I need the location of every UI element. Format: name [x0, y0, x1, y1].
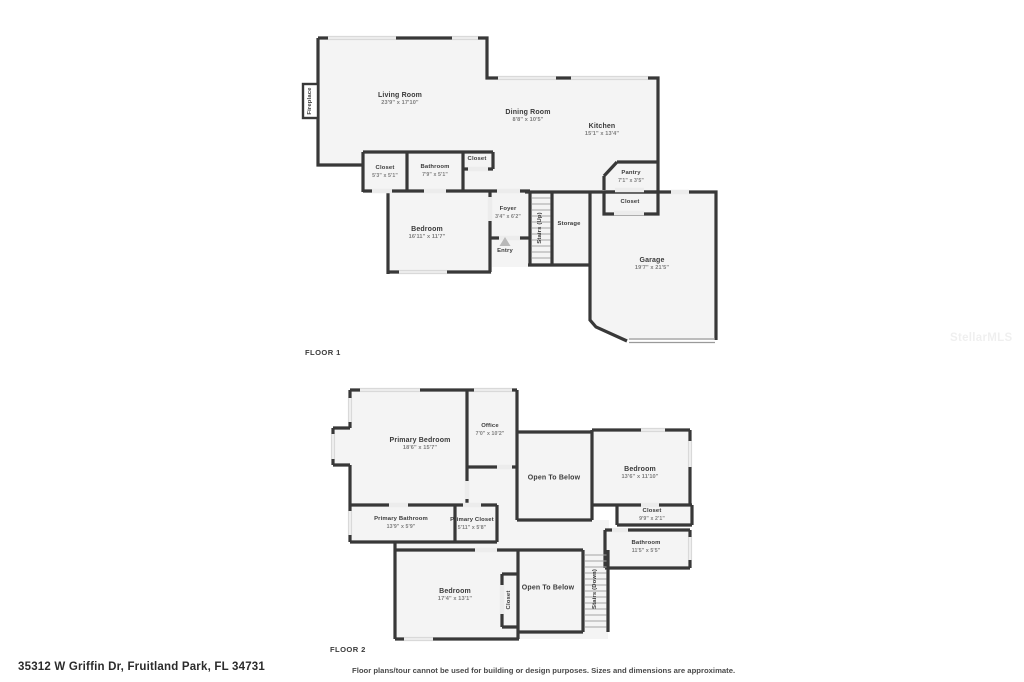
room-name: Bedroom: [438, 587, 472, 596]
room-name: Closet: [372, 165, 398, 173]
label-fireplace: Fireplace: [307, 87, 315, 114]
room-name: Primary Closet: [448, 517, 496, 525]
label-living-room: Living Room 23'9" x 17'10": [378, 91, 422, 107]
label-stairs-up: Stairs (Up): [537, 212, 545, 243]
label-foyer: Foyer 3'4" x 6'2": [495, 206, 521, 220]
label-dining-room: Dining Room 8'8" x 10'5": [505, 108, 550, 124]
room-name: Stairs (Down): [592, 569, 600, 609]
room-name: Garage: [635, 256, 669, 265]
room-dims: 15'1" x 13'4": [585, 131, 619, 138]
room-dims: 5'11" x 5'8": [448, 524, 496, 531]
room-name: Primary Bedroom: [390, 436, 451, 445]
room-name: Open To Below: [528, 473, 580, 482]
room-dims: 23'9" x 17'10": [378, 100, 422, 107]
room-name: Open To Below: [522, 583, 574, 592]
label-open-to-below-1: Open To Below: [528, 473, 580, 482]
label-closet-strip: Closet: [506, 591, 514, 610]
room-dims: 11'5" x 5'5": [631, 547, 660, 554]
label-kitchen: Kitchen 15'1" x 13'4": [585, 122, 619, 138]
room-name: Foyer: [495, 206, 521, 214]
stellar-mls-watermark: StellarMLS: [950, 332, 1012, 344]
property-address: 35312 W Griffin Dr, Fruitland Park, FL 3…: [18, 661, 265, 673]
label-primary-closet: Primary Closet 5'11" x 5'8": [448, 517, 496, 531]
garage-door-line: [629, 339, 715, 343]
label-bathroom-f2: Bathroom 11'5" x 5'5": [631, 540, 660, 554]
label-bedroom-f1: Bedroom 16'11" x 11'7": [409, 225, 446, 241]
room-name: Stairs (Up): [537, 212, 545, 243]
label-closet-3: Closet: [621, 199, 640, 207]
floor-plan-drawing: [0, 0, 1024, 682]
room-dims: 18'6" x 15'7": [390, 445, 451, 452]
room-name: Closet: [468, 156, 487, 164]
label-open-to-below-2: Open To Below: [522, 583, 574, 592]
label-closet-1: Closet 5'3" x 5'1": [372, 165, 398, 179]
room-name: Pantry: [618, 170, 644, 178]
room-dims: 8'8" x 10'5": [505, 117, 550, 124]
room-dims: 7'0" x 10'2": [476, 430, 505, 437]
room-name: Living Room: [378, 91, 422, 100]
label-primary-bathroom: Primary Bathroom 13'9" x 5'9": [374, 516, 428, 530]
room-dims: 3'4" x 6'2": [495, 213, 521, 220]
room-dims: 17'4" x 13'1": [438, 596, 472, 603]
label-storage: Storage: [558, 221, 581, 229]
label-garage: Garage 19'7" x 21'5": [635, 256, 669, 272]
room-name: Bedroom: [409, 225, 446, 234]
floor-plan-page: Fireplace Living Room 23'9" x 17'10" Din…: [0, 0, 1024, 682]
room-dims: 13'6" x 11'10": [621, 474, 658, 481]
label-closet-right: Closet 9'9" x 2'1": [639, 508, 665, 522]
label-bedroom-bottom: Bedroom 17'4" x 13'1": [438, 587, 472, 603]
room-name: Kitchen: [585, 122, 619, 131]
room-name: Dining Room: [505, 108, 550, 117]
label-pantry: Pantry 7'1" x 3'5": [618, 170, 644, 184]
room-name: Bedroom: [621, 465, 658, 474]
room-dims: 16'11" x 11'7": [409, 234, 446, 241]
room-name: Office: [476, 423, 505, 431]
room-name: Fireplace: [307, 87, 315, 114]
label-stairs-down: Stairs (Down): [592, 569, 600, 609]
room-name: Closet: [506, 591, 514, 610]
floor1-tag: FLOOR 1: [305, 348, 341, 357]
room-name: Bathroom: [420, 164, 449, 172]
room-dims: 7'1" x 3'5": [618, 177, 644, 184]
room-dims: 19'7" x 21'5": [635, 265, 669, 272]
label-office: Office 7'0" x 10'2": [476, 423, 505, 437]
room-name: Closet: [621, 199, 640, 207]
room-dims: 5'3" x 5'1": [372, 172, 398, 179]
label-closet-2: Closet: [468, 156, 487, 164]
room-name: Bathroom: [631, 540, 660, 548]
floor1-plan: [303, 38, 716, 343]
room-name: Storage: [558, 221, 581, 229]
room-dims: 13'9" x 5'9": [374, 523, 428, 530]
room-dims: 7'9" x 5'1": [420, 171, 449, 178]
label-bathroom-f1: Bathroom 7'9" x 5'1": [420, 164, 449, 178]
room-name: Entry: [497, 248, 513, 256]
label-primary-bedroom: Primary Bedroom 18'6" x 15'7": [390, 436, 451, 452]
floor2-tag: FLOOR 2: [330, 645, 366, 654]
room-name: Primary Bathroom: [374, 516, 428, 524]
room-name: Closet: [639, 508, 665, 516]
disclaimer-text: Floor plans/tour cannot be used for buil…: [352, 666, 735, 675]
room-dims: 9'9" x 2'1": [639, 515, 665, 522]
label-entry: Entry: [497, 248, 513, 256]
label-bedroom-right: Bedroom 13'6" x 11'10": [621, 465, 658, 481]
